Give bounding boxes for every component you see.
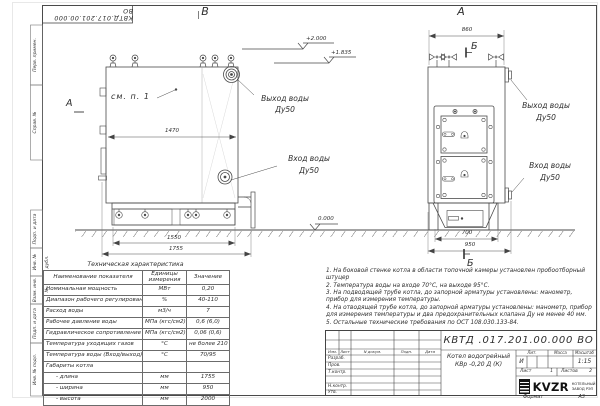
spec-cell: 0,20 <box>187 285 230 296</box>
view-title-b: В <box>193 5 217 18</box>
side-label-inv-podl: Инв. № подл. <box>30 343 42 396</box>
elevation-marks <box>242 43 356 230</box>
sign-row-nkontr: Н.контр. <box>328 384 347 389</box>
spec-cell <box>143 362 187 373</box>
spec-cell: мм <box>143 384 187 395</box>
spec-cell: Температура уходящих газов <box>44 340 143 351</box>
table-row: Гидравлическое сопротивление котлаМПа (к… <box>44 329 230 340</box>
spec-cell <box>187 362 230 373</box>
dim-950: 950 <box>447 242 493 248</box>
spec-cell: 7 <box>187 307 230 318</box>
spec-table: Наименование показателя Единицы измерени… <box>43 270 230 406</box>
spec-cell: 70/95 <box>187 351 230 362</box>
sheet-label: Лист <box>520 368 531 376</box>
table-row: - ширинамм950 <box>44 384 230 395</box>
title-block: КВТД .017.201.00.000 ВО Изм. Лист N доку… <box>325 330 597 396</box>
table-row: Габариты котла <box>44 362 230 373</box>
col-podp: Подп. <box>394 349 419 355</box>
spec-cell: Рабочее давление воды <box>44 318 143 329</box>
left-outlet-size: Ду50 <box>247 105 323 114</box>
scale-value: 1:15 <box>573 356 596 368</box>
spec-header-cell: Значение <box>187 271 230 285</box>
table-row: Температура воды (Вход/выход)°С70/95 <box>44 351 230 362</box>
format-value: А3 <box>578 394 585 400</box>
spec-cell: Температура воды (Вход/выход) <box>44 351 143 362</box>
right-inlet-label: Вход воды <box>512 161 588 170</box>
boiler-coil-icon <box>519 379 530 394</box>
spec-header-row: Наименование показателя Единицы измерени… <box>44 271 230 285</box>
company-line1: КОТЕЛЬНЫЙ <box>572 382 596 386</box>
table-row: - длинамм1755 <box>44 373 230 384</box>
col-ndokum: N докум. <box>351 349 394 355</box>
elevation-1835: +1.835 <box>331 50 351 56</box>
side-label-inv-dubl: Инв. № дубл. <box>30 248 42 276</box>
spec-cell: °С <box>143 340 187 351</box>
top-stamp-doc-number: КВТД.017.201.00.000 ВО <box>42 5 133 23</box>
col-izm: Изм. <box>326 349 339 355</box>
left-outlet-label: Выход воды <box>247 94 323 103</box>
left-inlet-size: Ду50 <box>271 166 347 175</box>
spec-cell: не более 210 <box>187 340 230 351</box>
side-label-podp-data2: Подп. и дата <box>30 304 42 343</box>
company-name: КОТЕЛЬНЫЙ ЗАВОД РЭП <box>572 382 596 390</box>
right-inlet-size: Ду50 <box>512 173 588 182</box>
technical-notes: 1. На боковой стенке котла в области топ… <box>326 268 595 327</box>
spec-cell: 950 <box>187 384 230 395</box>
table-row: Температура уходящих газов°Сне более 210 <box>44 340 230 351</box>
dim-1755: 1755 <box>154 246 198 252</box>
left-inlet-label: Вход воды <box>271 154 347 163</box>
left-view-drawing <box>99 55 256 228</box>
spec-cell: - ширина <box>44 384 143 395</box>
spec-cell: 0,06 (0,6) <box>187 329 230 340</box>
format-note: Формат А3 <box>523 394 585 400</box>
col-list: Лист <box>339 349 351 355</box>
section-label-b-top: Б <box>471 41 478 52</box>
doc-number: КВТД .017.201.00.000 ВО <box>441 331 596 350</box>
spec-cell: Номинальная мощность <box>44 285 143 296</box>
table-row: - высотамм2000 <box>44 395 230 406</box>
note-1: 1. На боковой стенке котла в области топ… <box>326 268 595 282</box>
spec-cell: 40-110 <box>187 296 230 307</box>
company-line2: ЗАВОД РЭП <box>572 387 596 391</box>
spec-cell: 1755 <box>187 373 230 384</box>
table-row: Диапазон рабочего регулирования%40-110 <box>44 296 230 307</box>
spec-cell: МВт <box>143 285 187 296</box>
side-label-perv-primen: Перв. примен. <box>30 25 42 85</box>
detail-reference: см. п. 1 <box>111 92 150 101</box>
spec-header-cell: Наименование показателя <box>44 271 143 285</box>
right-outlet-label: Выход воды <box>508 101 584 110</box>
dim-700: 700 <box>444 230 490 236</box>
sheet-value: 1 <box>550 368 553 376</box>
col-data: Дата <box>419 349 441 355</box>
view-title-a: А <box>449 5 473 18</box>
view-arrow-label-a: А <box>66 98 73 109</box>
spec-cell: Расход воды <box>44 307 143 318</box>
spec-cell: Диапазон рабочего регулирования <box>44 296 143 307</box>
dim-1470: 1470 <box>150 128 194 134</box>
side-label-vzam-inv: Взам. инв. № <box>30 276 42 304</box>
side-label-podp-data1: Подп. и дата <box>30 210 42 248</box>
elevation-0000: 0.000 <box>318 216 334 222</box>
spec-table-title: Техническая характеристика <box>43 261 228 268</box>
spec-cell: 0,6 (6,0) <box>187 318 230 329</box>
dim-1550: 1550 <box>152 235 196 241</box>
note-2: 2. Температура воды на входе 70°С, на вы… <box>326 283 595 290</box>
product-name-line2: КВр -0,20 Д (К) <box>441 361 516 369</box>
sign-row-razrab: Разраб. <box>328 356 345 361</box>
product-name-line1: Котел водогрейный <box>441 353 516 361</box>
spec-cell: Габариты котла <box>44 362 143 373</box>
lit-value: И <box>516 356 527 368</box>
side-label-sprav-no: Справ. № <box>30 85 42 160</box>
ground-hatch <box>75 231 575 237</box>
note-4: 4. На отводящей трубе котла, до запорной… <box>326 305 595 319</box>
spec-cell: % <box>143 296 187 307</box>
spec-cell: - длина <box>44 373 143 384</box>
note-3: 3. На подводящей трубе котла, до запорно… <box>326 290 595 304</box>
spec-cell: 2000 <box>187 395 230 406</box>
spec-cell: - высота <box>44 395 143 406</box>
note-5: 5. Остальные технические требования по О… <box>326 320 595 327</box>
dimension-lines <box>102 30 511 257</box>
format-label: Формат <box>523 394 543 400</box>
spec-cell: МПа (кгс/см2) <box>143 318 187 329</box>
right-outlet-size: Ду50 <box>508 113 584 122</box>
table-row: Номинальная мощностьМВт0,20 <box>44 285 230 296</box>
table-row: Расход водым3/ч7 <box>44 307 230 318</box>
spec-cell: °С <box>143 351 187 362</box>
dim-860: 860 <box>444 27 490 33</box>
sheets-cell: Листов 2 <box>557 368 596 376</box>
right-view-drawing <box>428 54 512 230</box>
table-row: Рабочее давление водыМПа (кгс/см2)0,6 (6… <box>44 318 230 329</box>
brand-text: KVZR <box>533 380 569 394</box>
sign-row-prov: Пров. <box>328 363 341 368</box>
spec-cell: мм <box>143 373 187 384</box>
spec-cell: Гидравлическое сопротивление котла <box>44 329 143 340</box>
sign-row-utv: Утв. <box>328 390 337 395</box>
sheets-label: Листов <box>561 368 578 376</box>
sign-row-tkontr: Т.контр. <box>328 370 347 375</box>
sheets-value: 2 <box>589 368 592 376</box>
spec-header-cell: Единицы измерения <box>143 271 187 285</box>
spec-cell: МПа (кгс/см2) <box>143 329 187 340</box>
sheet-cell: Лист 1 <box>516 368 557 376</box>
mass-header: Масса <box>548 350 573 356</box>
spec-cell: мм <box>143 395 187 406</box>
elevation-2000: +2.000 <box>306 36 326 42</box>
spec-cell: м3/ч <box>143 307 187 318</box>
